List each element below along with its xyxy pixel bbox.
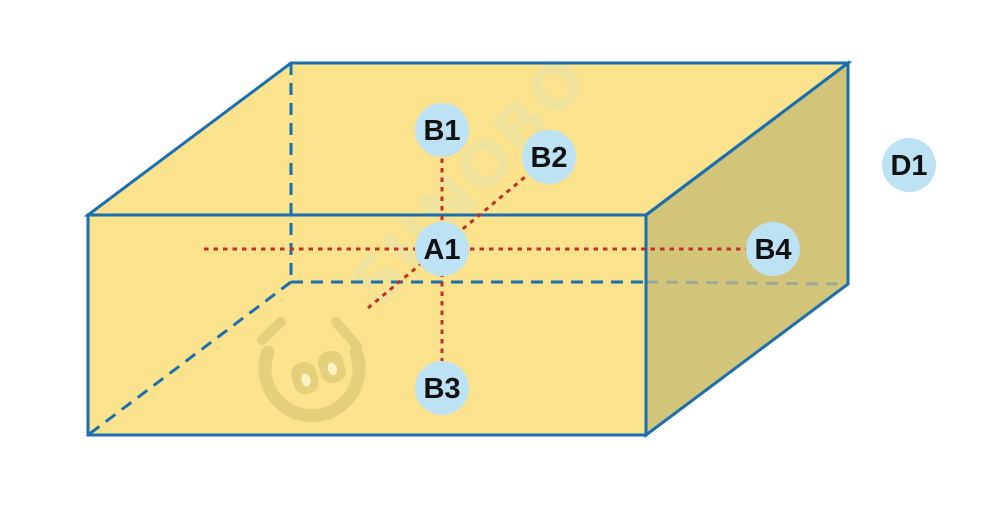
point-b4: B4 [746, 222, 800, 276]
point-a1-label: A1 [423, 234, 460, 266]
point-d1-label: D1 [890, 150, 927, 182]
point-a1: A1 [415, 222, 469, 276]
diagram-stage: SUNOBO A1 B1 B2 B3 [0, 0, 1000, 517]
hidden-edge-bottom-back-under-side-face [646, 282, 848, 284]
point-b3: B3 [415, 361, 469, 415]
point-d1: D1 [882, 138, 936, 192]
point-b2-label: B2 [530, 142, 567, 174]
point-b1-label: B1 [423, 115, 460, 147]
point-b4-label: B4 [754, 234, 791, 266]
point-b2: B2 [522, 130, 576, 184]
point-b3-label: B3 [423, 373, 460, 405]
box-diagram: SUNOBO A1 B1 B2 B3 [0, 0, 1000, 517]
point-b1: B1 [415, 103, 469, 157]
